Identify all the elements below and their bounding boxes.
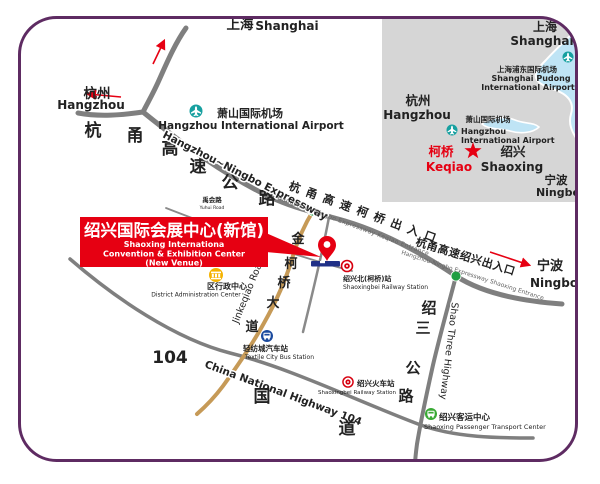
- inset-hangzhou-label-zh: 杭州: [405, 93, 430, 108]
- shaoxingbei-station-label-zh: 绍兴北(柯桥)站: [343, 274, 391, 283]
- textile-bus-station-label-en: Textile City Bus Station: [244, 354, 314, 361]
- yuhui-road-label-en: Yuhui Road: [199, 205, 225, 211]
- shaoxing-railway-station-label-en: Shaoxingbei Railway Station: [318, 390, 397, 396]
- inset-pudong-airport-icon: [563, 52, 574, 63]
- inset-shanghai-label-en: Shanghai: [510, 34, 573, 48]
- venue-name-en1: Shaoxing Internationa: [124, 240, 225, 249]
- ningbo-label-en: Ningbo: [530, 276, 578, 290]
- shaoxing-railway-station-icon: [343, 377, 353, 387]
- hangzhou-label-en: Hangzhou: [57, 98, 125, 112]
- jinkeqiao-char: 柯: [284, 256, 297, 272]
- government-building-icon: [209, 268, 223, 282]
- inset-pudong-airport-zh: 上海浦东国际机场: [497, 64, 557, 74]
- venue-platform: [311, 261, 340, 267]
- jinkeqiao-char: 桥: [277, 275, 291, 291]
- textile-bus-station-icon: [261, 330, 273, 342]
- passenger-center-icon: [425, 408, 437, 420]
- inset-ningbo-label-en: Ningbo: [536, 186, 581, 199]
- expressway-char: 甬: [127, 126, 144, 146]
- inset-pudong-airport-en1: Shanghai Pudong: [491, 74, 570, 83]
- textile-bus-station-label-zh: 轻纺城汽车站: [243, 343, 288, 353]
- highway-104-char-guo: 国: [254, 387, 271, 407]
- inset-xiaoshan-airport-icon: [447, 125, 458, 136]
- inset-shaoxing-label-en: Shaoxing: [481, 160, 544, 174]
- airport-label-en: Hangzhou International Airport: [158, 120, 344, 132]
- highway-104-number: 104: [152, 348, 188, 368]
- inset-map: 上海 Shanghai 上海浦东国际机场 Shanghai Pudong Int…: [382, 17, 580, 202]
- inset-ningbo-label-zh: 宁波: [545, 173, 568, 187]
- shao3-char: 三: [415, 319, 430, 337]
- venue-platform-notch: [320, 261, 325, 263]
- venue-name-en3: (New Venue): [145, 259, 203, 268]
- shao3-char: 公: [405, 359, 420, 377]
- airport-label-zh: 萧山国际机场: [217, 106, 283, 120]
- jinkeqiao-char: 金: [290, 231, 305, 247]
- expressway-char: 杭: [85, 120, 102, 141]
- inset-keqiao-label-en: Keqiao: [426, 160, 472, 174]
- highway-104-char-dao: 道: [339, 418, 356, 439]
- district-center-label-en: District Administration Center: [151, 292, 241, 299]
- district-center-label-zh: 区行政中心: [207, 281, 247, 291]
- inset-keqiao-label-zh: 柯桥: [428, 144, 454, 159]
- venue-name-en2: Convention & Exhibition Center: [103, 250, 245, 259]
- airport-icon: [190, 105, 203, 118]
- inset-hangzhou-label-en: Hangzhou: [383, 108, 451, 122]
- shaoxingbei-station-icon: [342, 261, 353, 272]
- inset-xiaoshan-airport-en1: Hangzhou: [461, 127, 506, 136]
- inset-xiaoshan-airport-zh: 萧山国际机场: [466, 114, 511, 124]
- venue-name-zh: 绍兴国际会展中心(新馆): [84, 220, 264, 240]
- shao3-char: 绍: [421, 299, 436, 317]
- inset-shaoxing-label-zh: 绍兴: [500, 144, 526, 159]
- jinkeqiao-char: 道: [245, 319, 258, 335]
- jinkeqiao-char: 大: [266, 295, 279, 311]
- inset-pudong-airport-en2: International Airport: [481, 83, 575, 92]
- shanghai-label-en: Shanghai: [255, 19, 318, 33]
- passenger-center-label-en: Shaoxing Passenger Transport Center: [424, 423, 546, 431]
- passenger-center-label-zh: 绍兴客运中心: [439, 412, 491, 423]
- shaoxingbei-station-label-en: Shaoxingbei Railway Station: [343, 284, 428, 291]
- yuhui-road-label-zh: 禹会路: [202, 195, 222, 204]
- map-canvas: 上海 Shanghai 上海浦东国际机场 Shanghai Pudong Int…: [0, 0, 600, 484]
- shaoxing-railway-station-label-zh: 绍兴火车站: [357, 378, 395, 388]
- ningbo-label-zh: 宁波: [537, 258, 564, 274]
- keqiao-access-map: 上海 Shanghai 上海浦东国际机场 Shanghai Pudong Int…: [0, 0, 600, 484]
- shao3-char: 路: [398, 387, 414, 405]
